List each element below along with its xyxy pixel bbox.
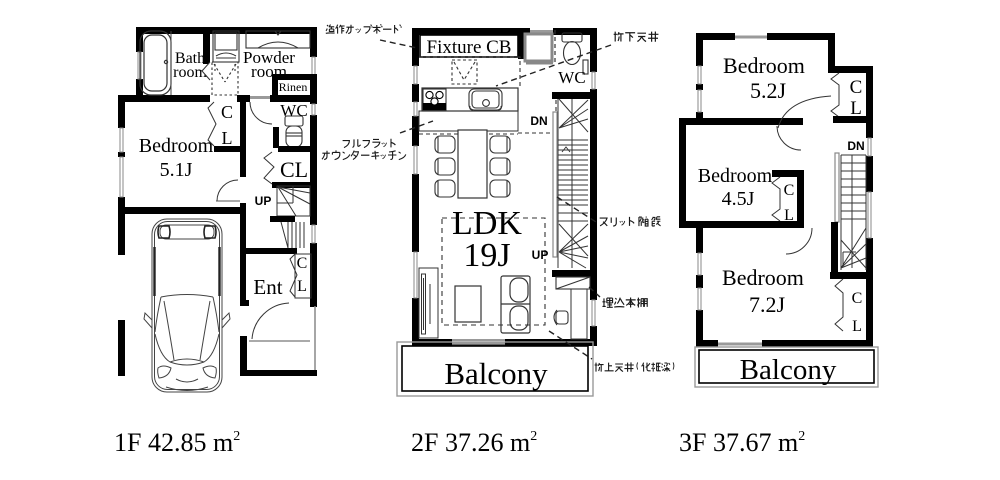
svg-text:C: C — [850, 77, 863, 98]
svg-text:room: room — [173, 64, 207, 81]
svg-text:CL: CL — [280, 157, 308, 182]
svg-text:5.1J: 5.1J — [160, 159, 193, 181]
svg-text:UP: UP — [255, 194, 272, 208]
svg-text:1F 42.85 m2: 1F 42.85 m2 — [114, 428, 240, 457]
svg-text:C: C — [784, 182, 795, 199]
svg-text:C: C — [221, 102, 233, 122]
svg-text:Bedroom: Bedroom — [722, 265, 804, 290]
svg-text:Bedroom: Bedroom — [723, 53, 805, 78]
svg-text:DN: DN — [847, 139, 864, 153]
svg-text:Bedroom: Bedroom — [139, 135, 214, 157]
svg-text:L: L — [297, 278, 307, 295]
svg-text:Rinen: Rinen — [279, 80, 308, 94]
svg-text:WC: WC — [558, 68, 585, 87]
svg-text:3F 37.67 m2: 3F 37.67 m2 — [679, 428, 805, 457]
svg-text:7.2J: 7.2J — [749, 292, 786, 317]
svg-text:4.5J: 4.5J — [722, 188, 755, 210]
svg-text:L: L — [850, 98, 862, 119]
svg-text:19J: 19J — [463, 237, 510, 274]
svg-text:Ent: Ent — [253, 275, 282, 299]
svg-text:C: C — [852, 290, 863, 307]
svg-text:L: L — [222, 128, 233, 148]
svg-text:Balcony: Balcony — [740, 354, 837, 386]
svg-text:UP: UP — [532, 248, 549, 262]
svg-text:WC: WC — [280, 101, 307, 120]
svg-text:2F 37.26 m2: 2F 37.26 m2 — [411, 428, 537, 457]
svg-text:5.2J: 5.2J — [750, 78, 787, 103]
svg-text:C: C — [297, 255, 308, 272]
svg-text:room: room — [251, 62, 287, 81]
svg-text:DN: DN — [530, 114, 547, 128]
svg-text:Bedroom: Bedroom — [698, 165, 773, 187]
svg-text:Balcony: Balcony — [444, 356, 548, 391]
svg-text:L: L — [852, 318, 862, 335]
svg-text:Fixture CB: Fixture CB — [427, 37, 512, 58]
